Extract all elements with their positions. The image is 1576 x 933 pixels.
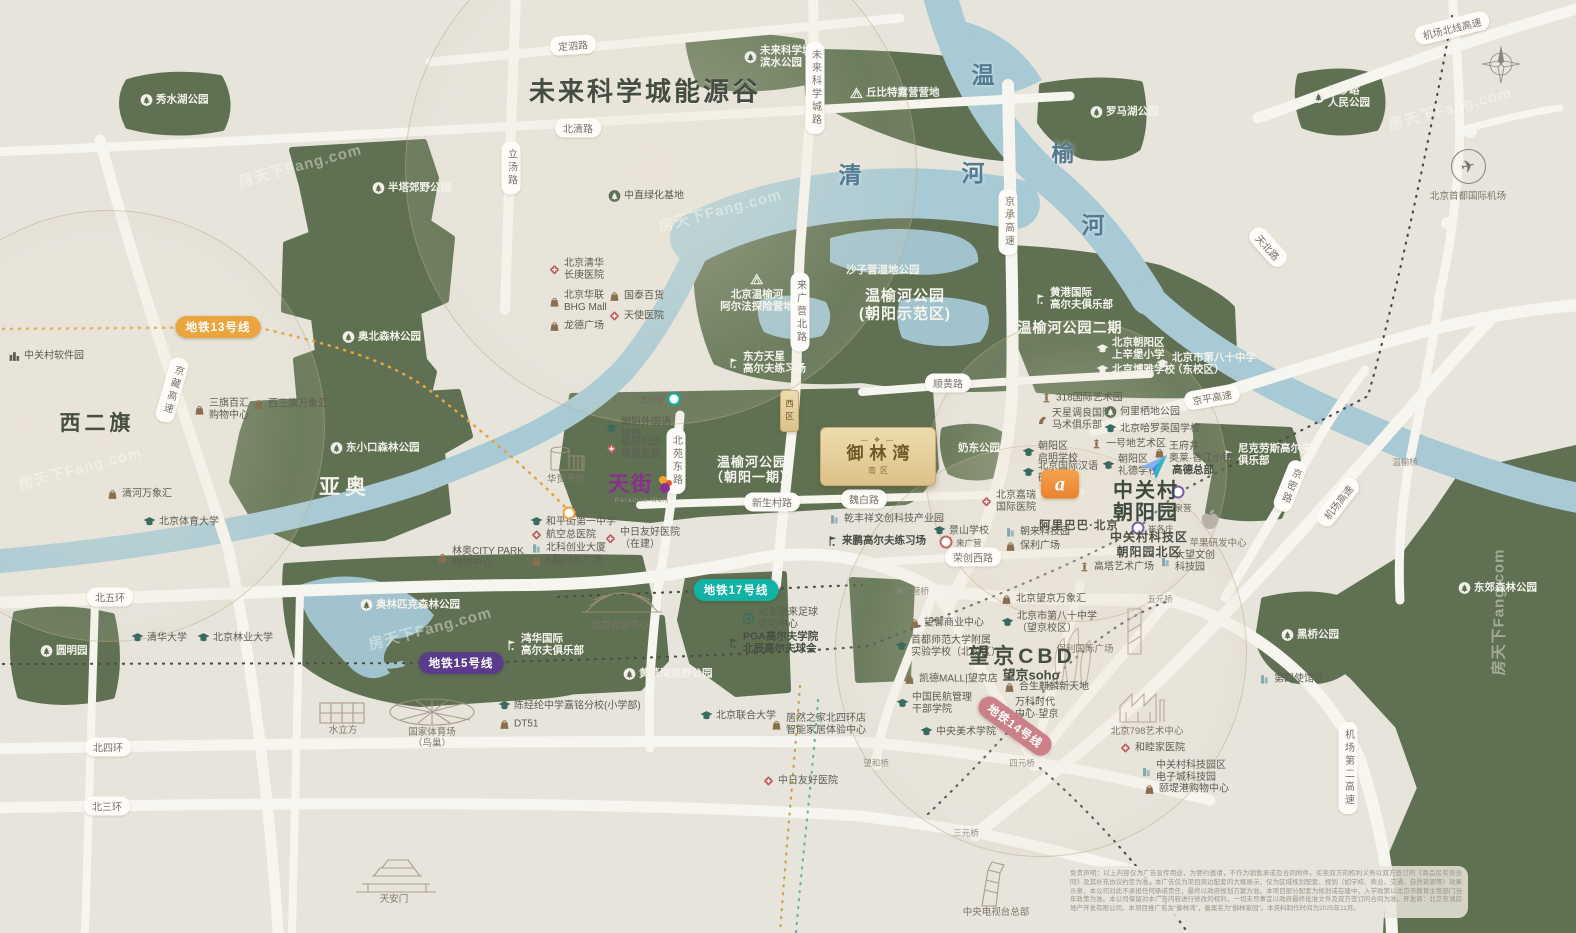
project-district-west-badge: 西区 — [780, 390, 799, 432]
airplane-icon: ✈ — [1459, 155, 1478, 178]
zgc-sub-line2: 朝阳园北区 — [1110, 545, 1188, 560]
zgc-title-line1: 中关村 — [1113, 480, 1179, 502]
cctv-sketch — [982, 862, 1004, 906]
amap-logo-icon — [1138, 450, 1170, 482]
water-cube-sketch — [320, 703, 364, 723]
compass-icon — [1481, 44, 1521, 84]
project-district-south: 南区 — [864, 465, 892, 476]
alibaba-beijing-logo: a 阿里巴巴·北京 — [1035, 484, 1123, 533]
zgc-tech-district-label: 中关村科技区 朝阳园北区 — [1110, 530, 1188, 560]
tianjie-flower-icon — [654, 474, 676, 496]
map-canvas: 秀水湖公园未来科学城滨水公园丘比特露营营地罗马湖公园后沙峪人民公园半塔郊野公园奥… — [0, 0, 1576, 933]
tianjie-subtitle: Paradise Walk — [615, 498, 670, 505]
zgc-title-line2: 朝阳园 — [1113, 502, 1179, 524]
alibaba-label: 阿里巴巴·北京 — [1039, 517, 1119, 533]
capital-airport-label: 北京首都国际机场 — [1430, 188, 1506, 202]
apple-logo-icon — [1200, 508, 1220, 532]
zgc-chaoyang-park-title: 中关村 朝阳园 — [1113, 480, 1179, 525]
project-name: 御林湾 — [841, 445, 916, 464]
tianjie-name: 天街 — [608, 474, 654, 495]
tianjie-logo: 天街 Paradise Walk — [608, 474, 676, 505]
capital-airport-icon: ✈ — [1451, 149, 1486, 184]
map-background-svg — [0, 0, 1576, 933]
birds-nest-sketch — [390, 699, 474, 725]
project-badge-yulinwan: — ❖ — 御林湾 南区 — [820, 427, 936, 486]
alibaba-logo-icon: a — [1041, 470, 1079, 499]
zgc-sub-line1: 中关村科技区 — [1110, 530, 1188, 545]
tiananmen-sketch — [356, 860, 436, 892]
disclaimer-text: 免责声明：以上内容仅为广告宣传用途，为要约邀请，不作为销售承诺及合同附件。买卖双… — [1064, 866, 1468, 918]
